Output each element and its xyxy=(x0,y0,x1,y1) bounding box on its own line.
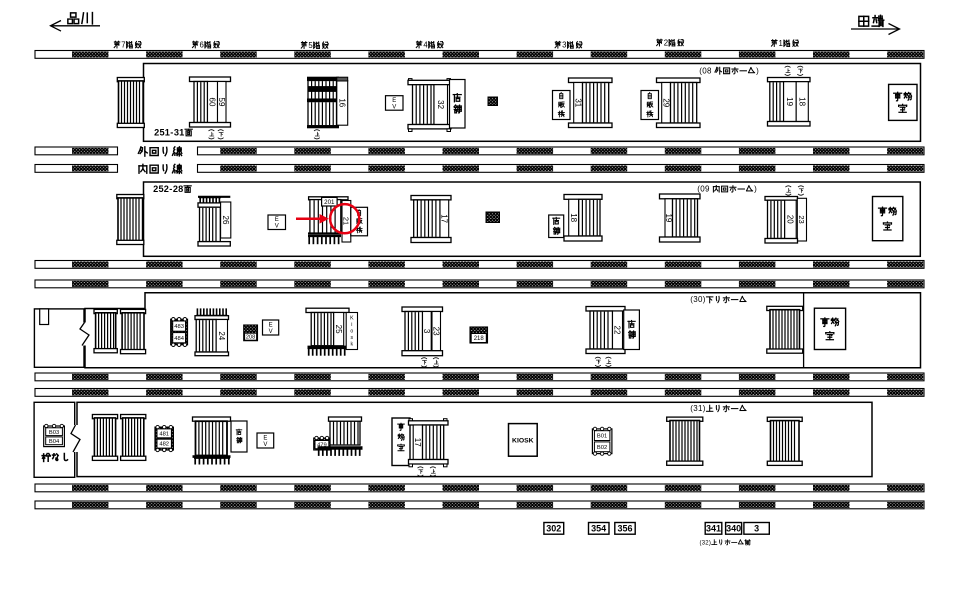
svg-text:E: E xyxy=(269,322,273,328)
svg-text:25: 25 xyxy=(334,325,343,334)
svg-text:484: 484 xyxy=(174,336,184,342)
svg-text:3: 3 xyxy=(562,41,566,50)
svg-text:60: 60 xyxy=(208,98,217,107)
svg-text:59: 59 xyxy=(217,98,226,107)
svg-text:18: 18 xyxy=(569,213,578,222)
svg-text:V: V xyxy=(269,329,273,335)
svg-text:481: 481 xyxy=(159,431,169,437)
svg-text:s: s xyxy=(351,335,354,341)
svg-text:16: 16 xyxy=(337,98,346,107)
svg-text:356: 356 xyxy=(617,524,632,534)
svg-text:2: 2 xyxy=(164,184,169,194)
svg-text:2: 2 xyxy=(664,38,668,47)
svg-text:482: 482 xyxy=(159,442,169,448)
svg-text:9: 9 xyxy=(705,185,710,194)
svg-text:E: E xyxy=(392,98,396,104)
svg-text:V: V xyxy=(392,104,396,110)
svg-text:208: 208 xyxy=(246,335,255,341)
svg-text:V: V xyxy=(263,442,267,448)
svg-text:302: 302 xyxy=(546,524,561,534)
svg-text:32: 32 xyxy=(436,100,445,109)
svg-text:): ) xyxy=(756,66,759,75)
svg-text:22: 22 xyxy=(613,326,622,335)
svg-text:i: i xyxy=(351,322,352,328)
svg-text:B04: B04 xyxy=(49,439,60,445)
svg-text:3: 3 xyxy=(422,329,431,334)
svg-text:20: 20 xyxy=(786,215,795,224)
svg-text:B01: B01 xyxy=(597,434,607,440)
svg-text:V: V xyxy=(275,224,279,230)
svg-text:341: 341 xyxy=(706,524,721,534)
svg-text:19: 19 xyxy=(785,97,794,106)
svg-text:354: 354 xyxy=(591,524,606,534)
svg-text:K: K xyxy=(350,315,354,321)
svg-text:3: 3 xyxy=(754,524,759,534)
svg-text:17: 17 xyxy=(413,438,422,447)
svg-text:31: 31 xyxy=(573,98,582,107)
svg-text:): ) xyxy=(709,540,711,546)
svg-text:24: 24 xyxy=(217,331,226,340)
svg-text:): ) xyxy=(703,404,706,413)
svg-text:): ) xyxy=(703,295,706,304)
svg-text:KIOSK: KIOSK xyxy=(512,437,534,444)
svg-text:6: 6 xyxy=(200,40,204,49)
svg-text:1: 1 xyxy=(165,127,170,137)
svg-text:18: 18 xyxy=(797,97,806,106)
svg-text:E: E xyxy=(263,435,267,441)
svg-text:17: 17 xyxy=(440,214,449,223)
svg-text:B02: B02 xyxy=(597,445,607,451)
svg-text:5: 5 xyxy=(308,41,313,50)
svg-text:7: 7 xyxy=(121,40,125,49)
svg-text:201: 201 xyxy=(324,199,335,206)
svg-text:o: o xyxy=(350,328,353,334)
svg-text:8: 8 xyxy=(178,184,183,194)
svg-text:): ) xyxy=(754,185,757,194)
svg-text:B03: B03 xyxy=(49,430,59,436)
svg-text:23: 23 xyxy=(431,327,440,336)
svg-text:26: 26 xyxy=(221,216,230,225)
svg-text:340: 340 xyxy=(726,524,741,534)
svg-text:8: 8 xyxy=(707,66,712,75)
svg-text:E: E xyxy=(275,217,279,223)
svg-text:1: 1 xyxy=(179,127,184,137)
svg-text:4: 4 xyxy=(423,40,428,49)
svg-text:1: 1 xyxy=(779,39,783,48)
svg-text:k: k xyxy=(351,341,354,347)
svg-text:29: 29 xyxy=(661,98,670,107)
svg-text:218: 218 xyxy=(474,336,485,342)
svg-text:23: 23 xyxy=(797,215,806,223)
svg-text:19: 19 xyxy=(664,213,673,222)
svg-text:483: 483 xyxy=(174,324,184,330)
svg-text:21: 21 xyxy=(342,217,351,225)
